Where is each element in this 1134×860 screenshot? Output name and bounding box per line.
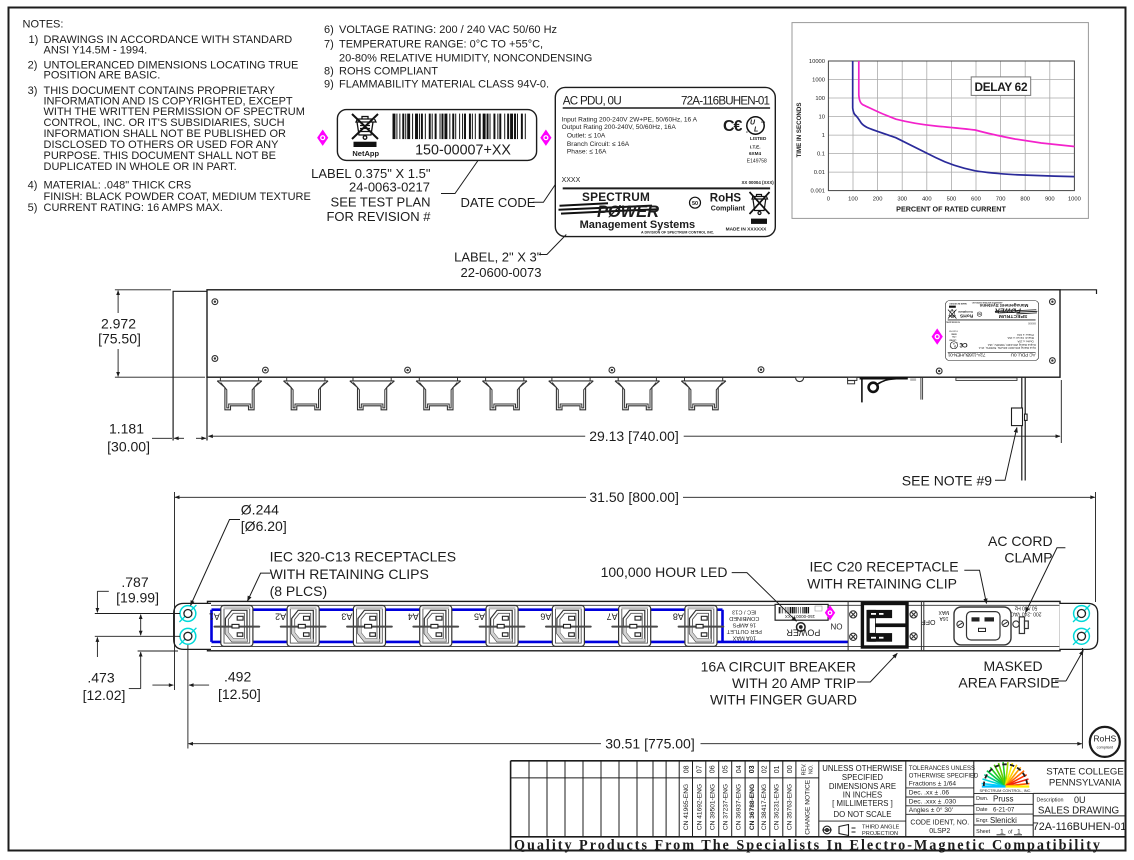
svg-text:31.50 [800.00]: 31.50 [800.00] [589, 489, 679, 505]
svg-text:Pruss: Pruss [993, 794, 1013, 803]
svg-text:01: 01 [774, 765, 781, 773]
svg-text:50 / 60 Hz: 50 / 60 Hz [1014, 605, 1037, 611]
svg-text:IEC C20 RECEPTACLE: IEC C20 RECEPTACLE [809, 559, 958, 575]
svg-text:WITH 20 AMP TRIP: WITH 20 AMP TRIP [732, 675, 856, 691]
svg-text:03: 03 [749, 765, 756, 773]
svg-text:WITH FINGER GUARD: WITH FINGER GUARD [710, 692, 857, 708]
svg-text:2): 2) [28, 60, 38, 72]
svg-text:06: 06 [710, 765, 717, 773]
svg-text:Outlet: ≤ 10A: Outlet: ≤ 10A [567, 133, 606, 140]
svg-text:400: 400 [922, 197, 932, 203]
svg-text:Dwn.: Dwn. [976, 796, 988, 802]
svg-text:CURRENT RATING: 16 AMPS MAX.: CURRENT RATING: 16 AMPS MAX. [44, 202, 223, 214]
svg-text:2.972: 2.972 [101, 316, 136, 332]
svg-text:Input Rating 200-240V 2W+PE, 5: Input Rating 200-240V 2W+PE, 50/60Hz, 16… [562, 117, 698, 124]
svg-text:C€: C€ [723, 118, 743, 135]
svg-text:INFORMATION SHALL NOT BE PUBLI: INFORMATION SHALL NOT BE PUBLISHED OR [44, 128, 287, 140]
svg-text:1): 1) [29, 34, 39, 46]
svg-text:FINISH: BLACK POWDER COAT, MED: FINISH: BLACK POWDER COAT, MEDIUM TEXTUR… [44, 191, 311, 203]
svg-text:10A MAX: 10A MAX [732, 634, 756, 640]
svg-text:.787: .787 [121, 574, 148, 590]
svg-text:THIRD ANGLE: THIRD ANGLE [862, 824, 900, 830]
svg-text:CODE IDENT, NO.: CODE IDENT, NO. [910, 819, 969, 826]
svg-text:L: L [754, 127, 758, 134]
svg-text:0U: 0U [1074, 795, 1086, 805]
svg-text:RoHS: RoHS [710, 193, 742, 205]
svg-text:RoHS: RoHS [1093, 734, 1116, 744]
svg-text:MADE IN XXXXXX: MADE IN XXXXXX [726, 227, 768, 233]
svg-text:800: 800 [1020, 197, 1030, 203]
svg-text:8): 8) [324, 66, 334, 78]
svg-text:UNLESS OTHERWISE: UNLESS OTHERWISE [822, 764, 902, 773]
svg-text:I.T.E.: I.T.E. [750, 145, 760, 150]
svg-text:DIMENSIONS ARE: DIMENSIONS ARE [829, 782, 896, 791]
svg-text:DO NOT SCALE: DO NOT SCALE [834, 810, 892, 819]
svg-text:PENNSYLVANIA: PENNSYLVANIA [1049, 778, 1122, 789]
svg-text:Fractions ± 1/64: Fractions ± 1/64 [909, 780, 957, 787]
svg-text:[75.50]: [75.50] [98, 331, 141, 347]
svg-text:5): 5) [28, 202, 38, 214]
svg-text:A4: A4 [408, 612, 419, 622]
svg-text:A7: A7 [607, 612, 618, 622]
svg-text:AREA FARSIDE: AREA FARSIDE [958, 674, 1059, 690]
svg-text:STATE COLLEGE: STATE COLLEGE [1046, 767, 1123, 778]
svg-text:02: 02 [762, 765, 769, 773]
svg-text:600: 600 [971, 197, 981, 203]
svg-text:XX 00004 (XXX): XX 00004 (XXX) [742, 180, 775, 185]
svg-text:08: 08 [683, 765, 690, 773]
svg-text:72A-116BUHEN-01: 72A-116BUHEN-01 [1033, 821, 1126, 833]
svg-text:OTHERWISE SPECIFIED: OTHERWISE SPECIFIED [909, 774, 979, 780]
svg-text:500: 500 [947, 197, 957, 203]
svg-text:Ø.244: Ø.244 [241, 502, 279, 518]
svg-text:FOR REVISION #: FOR REVISION # [326, 209, 431, 224]
svg-text:150-00007+XX: 150-00007+XX [415, 143, 511, 159]
svg-text:CN 38417-ENG: CN 38417-ENG [761, 784, 768, 830]
svg-text:[ MILLIMETERS ]: [ MILLIMETERS ] [832, 799, 893, 808]
svg-text:SPECTRUM: SPECTRUM [582, 190, 650, 204]
svg-text:Date: Date [976, 807, 987, 813]
svg-text:50: 50 [692, 201, 698, 207]
svg-text:04: 04 [736, 765, 743, 773]
svg-text:TIME IN SECONDS: TIME IN SECONDS [796, 102, 803, 157]
svg-text:TEMPERATURE RANGE: 0°C TO +55°: TEMPERATURE RANGE: 0°C TO +55°C, [339, 39, 543, 51]
svg-text:16A: 16A [939, 615, 949, 621]
svg-text:WITH RETAINING CLIP: WITH RETAINING CLIP [807, 576, 957, 592]
svg-text:[19.99]: [19.99] [116, 589, 159, 605]
svg-text:us: us [761, 119, 765, 124]
svg-text:CN 41692-ENG: CN 41692-ENG [696, 784, 703, 830]
svg-text:ANSI Y14.5M - 1994.: ANSI Y14.5M - 1994. [44, 45, 148, 57]
svg-text:TOLERANCES UNLESS: TOLERANCES UNLESS [909, 766, 975, 772]
svg-text:PROJECTION: PROJECTION [862, 831, 898, 837]
svg-text:100: 100 [815, 96, 825, 102]
svg-text:DUPLICATED IN WHOLE OR IN PART: DUPLICATED IN WHOLE OR IN PART. [44, 161, 237, 173]
svg-text:Dec. .xx ± .06: Dec. .xx ± .06 [909, 789, 950, 796]
svg-text:Management Systems: Management Systems [580, 219, 696, 231]
svg-text:100,000 HOUR LED: 100,000 HOUR LED [601, 564, 728, 580]
svg-text:[30.00]: [30.00] [107, 439, 150, 455]
svg-text:Dec. .xxx ± .030: Dec. .xxx ± .030 [909, 798, 957, 805]
svg-text:Sheet: Sheet [976, 829, 991, 835]
svg-text:0LSP2: 0LSP2 [929, 828, 950, 835]
svg-text:100: 100 [848, 197, 858, 203]
svg-text:MATERIAL: .048" THICK CRS: MATERIAL: .048" THICK CRS [44, 180, 192, 192]
svg-text:20-80% RELATIVE HUMIDITY, NONC: 20-80% RELATIVE HUMIDITY, NONCONDENSING [339, 53, 592, 65]
svg-text:VOLTAGE RATING: 200 / 240 VAC: VOLTAGE RATING: 200 / 240 VAC 50/60 Hz [339, 24, 557, 36]
svg-text:16A CIRCUIT BREAKER: 16A CIRCUIT BREAKER [701, 659, 856, 675]
svg-text:6): 6) [324, 24, 334, 36]
svg-text:22-0600-0073: 22-0600-0073 [461, 265, 542, 280]
svg-text:4): 4) [28, 180, 38, 192]
svg-text:16 AMPS: 16 AMPS [732, 622, 756, 628]
svg-text:A3: A3 [341, 612, 352, 622]
svg-text:Phase: ≤ 16A: Phase: ≤ 16A [567, 149, 607, 156]
svg-text:1: 1 [822, 133, 825, 139]
svg-text:.492: .492 [224, 669, 251, 685]
svg-text:CN 37237-ENG: CN 37237-ENG [722, 784, 729, 830]
svg-text:3): 3) [28, 85, 38, 97]
svg-text:10: 10 [819, 115, 825, 121]
svg-text:MASKED: MASKED [983, 658, 1042, 674]
svg-text:DELAY 62: DELAY 62 [975, 80, 1028, 94]
svg-text:DATE CODE: DATE CODE [461, 195, 536, 210]
svg-text:CN 41965-ENG: CN 41965-ENG [683, 784, 690, 830]
svg-text:300: 300 [897, 197, 907, 203]
svg-text:[Ø6.20]: [Ø6.20] [241, 518, 287, 534]
svg-text:1000: 1000 [812, 78, 825, 84]
svg-text:6XM4: 6XM4 [749, 151, 761, 156]
svg-text:CN 36231-ENG: CN 36231-ENG [774, 784, 781, 830]
svg-text:AC CORD: AC CORD [988, 533, 1053, 549]
svg-text:900: 900 [1045, 197, 1055, 203]
svg-text:IN INCHES: IN INCHES [843, 791, 882, 800]
svg-text:FLAMMABILITY MATERIAL CLASS 94: FLAMMABILITY MATERIAL CLASS 94V-0. [339, 79, 549, 91]
svg-text:Branch Circuit: ≤ 16A: Branch Circuit: ≤ 16A [567, 141, 630, 148]
svg-text:ROHS COMPLIANT: ROHS COMPLIANT [339, 66, 438, 78]
svg-text:CN 39501-ENG: CN 39501-ENG [709, 784, 716, 830]
svg-text:LISTED: LISTED [750, 136, 767, 141]
svg-text:A8: A8 [673, 612, 684, 622]
svg-text:1000: 1000 [1068, 197, 1081, 203]
svg-text:CN 36937-ENG: CN 36937-ENG [736, 784, 743, 830]
svg-text:A5: A5 [474, 612, 485, 622]
svg-text:SPECTRUM CONTROL, INC.: SPECTRUM CONTROL, INC. [980, 788, 1032, 793]
svg-text:200: 200 [873, 197, 883, 203]
svg-text:POWER: POWER [786, 628, 821, 638]
svg-text:E149758: E149758 [747, 159, 767, 165]
svg-text:05: 05 [723, 765, 730, 773]
svg-text:NOTES:: NOTES: [23, 19, 64, 31]
svg-text:REV.: REV. [802, 763, 808, 775]
svg-text:72A-116BUHEN-01: 72A-116BUHEN-01 [681, 95, 770, 108]
svg-text:29.13 [740.00]: 29.13 [740.00] [589, 428, 679, 444]
svg-text:A DIVISION OF SPECTRUM CONTROL: A DIVISION OF SPECTRUM CONTROL INC. [641, 231, 714, 235]
svg-text:24-0063-0217: 24-0063-0217 [349, 180, 430, 195]
svg-text:CLAMP: CLAMP [1004, 550, 1052, 566]
svg-text:SEE TEST PLAN: SEE TEST PLAN [331, 195, 431, 210]
svg-text:COMBINED: COMBINED [729, 615, 759, 621]
svg-text:c: c [746, 129, 748, 134]
svg-text:PERCENT OF RATED CURRENT: PERCENT OF RATED CURRENT [896, 205, 1006, 214]
svg-text:Slenicki: Slenicki [990, 816, 1017, 825]
svg-text:IEC / C13: IEC / C13 [732, 609, 756, 615]
svg-text:6-21-07: 6-21-07 [993, 807, 1015, 814]
svg-text:CN 36788-ENG: CN 36788-ENG [749, 784, 756, 830]
svg-text:9): 9) [324, 79, 334, 91]
svg-text:7): 7) [324, 39, 334, 51]
svg-text:A2: A2 [275, 612, 286, 622]
svg-text:PER OUTLET: PER OUTLET [726, 628, 762, 634]
svg-text:0: 0 [827, 197, 830, 203]
svg-text:MAX: MAX [938, 609, 950, 615]
svg-text:A1: A1 [209, 612, 220, 622]
svg-text:Engr.: Engr. [976, 818, 989, 824]
svg-text:POSITION ARE BASIC.: POSITION ARE BASIC. [44, 70, 161, 82]
svg-text:compliant: compliant [1097, 746, 1114, 750]
svg-text:A6: A6 [540, 612, 551, 622]
svg-text:CN 35763-ENG: CN 35763-ENG [787, 784, 794, 830]
svg-text:SEE NOTE #9: SEE NOTE #9 [902, 473, 992, 489]
svg-text:XXXX: XXXX [562, 177, 581, 184]
svg-text:IEC 320-C13 RECEPTACLES: IEC 320-C13 RECEPTACLES [270, 549, 456, 565]
svg-text:Description: Description [1037, 798, 1064, 804]
svg-text:LABEL, 2" X 3": LABEL, 2" X 3" [454, 250, 542, 265]
svg-text:NO.: NO. [809, 765, 815, 775]
svg-text:.473: .473 [87, 670, 114, 686]
svg-text:[12.02]: [12.02] [83, 687, 126, 703]
svg-text:AC PDU, 0U: AC PDU, 0U [563, 95, 622, 108]
svg-text:700: 700 [996, 197, 1006, 203]
svg-text:00: 00 [787, 765, 794, 773]
svg-text:CHANGE NOTICE: CHANGE NOTICE [805, 779, 812, 835]
svg-text:ON: ON [830, 621, 842, 630]
svg-text:Compliant: Compliant [711, 206, 746, 213]
svg-text:30.51 [775.00]: 30.51 [775.00] [605, 736, 695, 752]
svg-text:10000: 10000 [809, 59, 825, 65]
svg-text:Output Rating 200-240V, 50/60H: Output Rating 200-240V, 50/60Hz, 16A [562, 124, 677, 131]
svg-text:[12.50]: [12.50] [218, 686, 261, 702]
svg-text:SALES DRAWING: SALES DRAWING [1038, 805, 1119, 816]
svg-text:Angles ± 0° 30': Angles ± 0° 30' [909, 806, 953, 814]
svg-text:0.001: 0.001 [810, 189, 825, 195]
svg-text:NetApp: NetApp [352, 149, 379, 158]
svg-text:(8 PLCS): (8 PLCS) [270, 583, 328, 599]
svg-text:SPECIFIED: SPECIFIED [842, 773, 884, 782]
svg-text:WITH RETAINING CLIPS: WITH RETAINING CLIPS [270, 566, 429, 582]
svg-text:0.01: 0.01 [814, 170, 825, 176]
svg-text:1.181: 1.181 [109, 421, 144, 437]
svg-text:07: 07 [697, 765, 704, 773]
svg-text:0.1: 0.1 [817, 152, 825, 158]
svg-text:of: of [1008, 830, 1013, 836]
